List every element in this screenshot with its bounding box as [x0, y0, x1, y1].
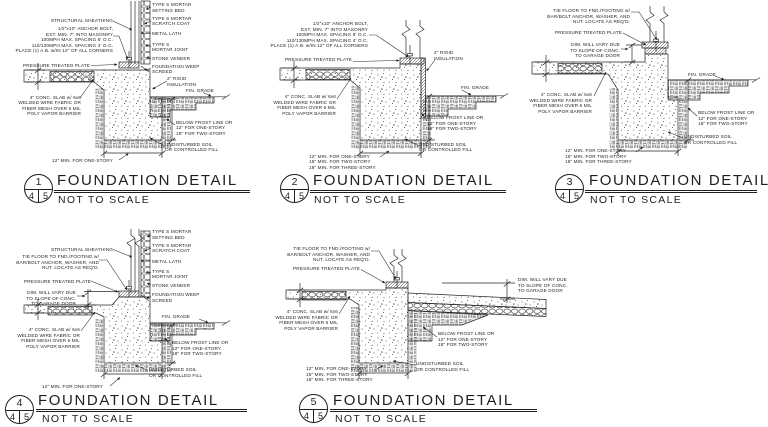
- detail-title: FOUNDATION DETAIL: [38, 392, 219, 409]
- detail-scale: NOT TO SCALE: [58, 194, 150, 206]
- label-footing-width: 12" MIN. FOR ONE-STORY 15" MIN. FOR TWO-…: [565, 148, 632, 165]
- label-rigid-insulation: 2" RIGID INSULATION: [167, 76, 196, 87]
- label-pressure-plate: PRESSURE TREATED PLATE: [276, 57, 352, 63]
- label-soil-note: UNDISTURBED SOIL OR CONTROLLED FILL: [416, 361, 469, 372]
- detail-number-bubble: 3 45: [555, 174, 584, 203]
- label-tie-floor-note: TIE FLOOR TO FND./FOOTING w/ BAR/BOLT AN…: [542, 8, 630, 25]
- detail-number: 4: [6, 396, 33, 411]
- title-rule: [585, 190, 757, 193]
- detail-number: 1: [25, 175, 52, 190]
- label-footing-width: 12" MIN. FOR ONE-STORY: [42, 384, 103, 390]
- label-scratch-coat: TYPE S MORTAR SCRATCH COAT: [152, 16, 191, 27]
- drawing-sheet: TYPE S MORTAR SETTING BED TYPE S MORTAR …: [0, 0, 768, 427]
- label-soil-note: UNDISTURBED SOIL OR CONTROLLED FILL: [149, 367, 202, 378]
- label-stone-veneer: STONE VENEER: [152, 283, 190, 289]
- label-setting-bed: TYPE S MORTAR SETTING BED: [152, 229, 191, 240]
- label-mortar-joint: TYPE S MORTAR JOINT: [152, 269, 188, 280]
- label-pressure-plate: PRESSURE TREATED PLATE: [14, 63, 90, 69]
- detail-number-bubble: 1 45: [24, 174, 53, 203]
- label-fin-grade: FIN. GRADE: [186, 88, 214, 94]
- title-rule: [310, 190, 506, 193]
- label-rigid-insulation: 2" RIGID INSULATION: [434, 50, 463, 61]
- detail-4-panel: TYPE S MORTAR SETTING BED TYPE S MORTAR …: [0, 215, 256, 427]
- label-sheathing: STRUCTURAL SHEATHING: [43, 247, 113, 253]
- label-tie-floor-note: TIE FLOOR TO FND./FOOTING w/ BAR/BOLT AN…: [2, 254, 99, 271]
- label-slab-note: 4" CONC. SLAB w/ 6x6 WELDED WIRE FABRIC …: [260, 309, 338, 331]
- label-scratch-coat: TYPE S MORTAR SCRATCH COAT: [152, 243, 191, 254]
- detail-number-bubble: 4 45: [5, 395, 34, 424]
- detail-1-panel: TYPE S MORTAR SETTING BED TYPE S MORTAR …: [0, 0, 256, 212]
- label-weep-screed: FOUNDATION WEEP SCREED: [152, 64, 200, 75]
- label-stone-veneer: STONE VENEER: [152, 56, 190, 62]
- label-pressure-plate: PRESSURE TREATED PLATE: [284, 266, 360, 272]
- detail-number: 2: [281, 175, 308, 190]
- label-dim-vary-note: DIM. WILL VARY DUE TO SLOPE OF CONC. TO …: [8, 290, 76, 307]
- title-rule: [36, 409, 247, 412]
- label-fin-grade: FIN. GRADE: [162, 314, 190, 320]
- detail-title: FOUNDATION DETAIL: [589, 172, 768, 189]
- label-weep-screed: FOUNDATION WEEP SCREED: [152, 292, 200, 303]
- detail-2-panel: 1/2"x10" ANCHOR BOLT, EXT. MIN. 7" INTO …: [256, 0, 512, 212]
- label-slab-note: 4" CONC. SLAB w/ 6x6 WELDED WIRE FABRIC …: [2, 327, 80, 349]
- label-pressure-plate: PRESSURE TREATED PLATE: [546, 30, 622, 36]
- label-footing-width: 12" MIN. FOR ONE-STORY: [52, 158, 113, 164]
- label-frost-note: BELOW FROST LINE OR 12" FOR ONE-STORY 18…: [427, 115, 483, 132]
- label-frost-note: BELOW FROST LINE OR 12" FOR ONE-STORY 18…: [698, 110, 754, 127]
- label-anchor-bolt-note: 1/2"x10" ANCHOR BOLT, EXT. MIN. 7" INTO …: [264, 21, 368, 49]
- label-dim-vary-note: DIM. WILL VARY DUE TO SLOPE OF CONC. TO …: [518, 277, 568, 294]
- detail-number: 5: [300, 395, 327, 410]
- label-frost-note: BELOW FROST LINE OR 12" FOR ONE-STORY 18…: [176, 120, 232, 137]
- label-fin-grade: FIN. GRADE: [461, 85, 489, 91]
- detail-scale: NOT TO SCALE: [335, 413, 427, 425]
- detail-title: FOUNDATION DETAIL: [57, 172, 238, 189]
- detail-title: FOUNDATION DETAIL: [333, 392, 514, 409]
- detail-scale: NOT TO SCALE: [42, 413, 134, 425]
- detail-5-panel: TIE FLOOR TO FND./FOOTING w/ BAR/BOLT AN…: [256, 215, 576, 427]
- detail-scale: NOT TO SCALE: [314, 194, 406, 206]
- label-frost-note: BELOW FROST LINE OR 12" FOR ONE-STORY 18…: [172, 340, 228, 357]
- label-slab-note: 4" CONC. SLAB w/ 6x6 WELDED WIRE FABRIC …: [5, 95, 81, 117]
- label-slab-note: 4" CONC. SLAB w/ 6x6 WELDED WIRE FABRIC …: [514, 92, 592, 114]
- detail-3-panel: TIE FLOOR TO FND./FOOTING w/ BAR/BOLT AN…: [512, 0, 768, 212]
- label-metal-lath: METAL LATH: [152, 31, 181, 37]
- detail-number-bubble: 5 45: [299, 394, 328, 423]
- label-soil-note: UNDISTURBED SOIL OR CONTROLLED FILL: [165, 142, 218, 153]
- detail-title: FOUNDATION DETAIL: [313, 172, 494, 189]
- label-pressure-plate: PRESSURE TREATED PLATE: [15, 279, 91, 285]
- label-soil-note: UNDISTURBED SOIL OR CONTROLLED FILL: [419, 142, 472, 153]
- label-footing-width: 12" MIN. FOR ONE-STORY 15" MIN. FOR TWO-…: [309, 154, 376, 171]
- detail-number: 3: [556, 175, 583, 190]
- label-metal-lath: METAL LATH: [152, 259, 181, 265]
- label-soil-note: UNDISTURBED SOIL OR CONTROLLED FILL: [684, 134, 737, 145]
- label-setting-bed: TYPE S MORTAR SETTING BED: [152, 2, 191, 13]
- label-sheathing: STRUCTURAL SHEATHING: [43, 18, 113, 24]
- label-mortar-joint: TYPE S MORTAR JOINT: [152, 42, 188, 53]
- title-rule: [330, 409, 537, 412]
- detail-number-bubble: 2 45: [280, 174, 309, 203]
- label-dim-vary-note: DIM. WILL VARY DUE TO SLOPE OF CONC. TO …: [554, 42, 620, 59]
- label-fin-grade: FIN. GRADE: [688, 72, 716, 78]
- label-frost-note: BELOW FROST LINE OR 12" FOR ONE-STORY 18…: [438, 331, 494, 348]
- label-footing-width: 12" MIN. FOR ONE-STORY 15" MIN. FOR TWO-…: [306, 366, 373, 383]
- detail-scale: NOT TO SCALE: [590, 194, 682, 206]
- title-rule: [54, 190, 250, 193]
- label-slab-note: 4" CONC. SLAB w/ 6x6 WELDED WIRE FABRIC …: [258, 94, 336, 116]
- label-tie-floor-note: TIE FLOOR TO FND./FOOTING w/ BAR/BOLT AN…: [282, 246, 370, 263]
- label-anchor-bolt-note: 1/2"x10" ANCHOR BOLT, EXT. MIN. 7" INTO …: [2, 26, 113, 54]
